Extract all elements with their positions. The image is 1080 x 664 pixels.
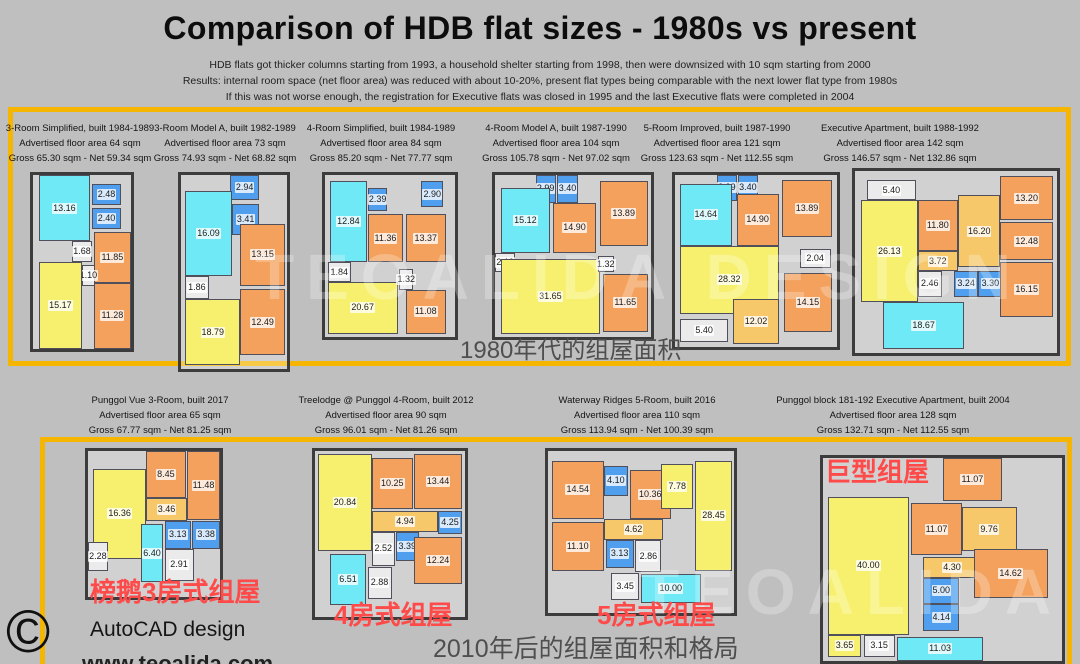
room-bath: 3.13 (606, 540, 634, 568)
room-area-sqm: 2.40 (97, 213, 117, 224)
room-bath: 4.14 (923, 604, 959, 630)
room-bed: 10.25 (372, 458, 413, 509)
plan-advertised-area: Advertised floor area 65 sqm (89, 408, 232, 423)
room-area-sqm: 13.20 (1014, 193, 1039, 204)
room-liv: 28.45 (695, 461, 732, 571)
plan-header: 3-Room Simplified, built 1984-1989Advert… (6, 121, 154, 166)
room-area-sqm: 28.32 (717, 274, 742, 285)
room-area-sqm: 1.84 (330, 267, 350, 278)
flat-type-label-cn: 巨型组屋 (825, 452, 929, 489)
room-area-sqm: 13.89 (611, 208, 636, 219)
room-kitchen: 12.84 (330, 181, 366, 262)
plan-header: Treelodge @ Punggol 4-Room, built 2012Ad… (298, 393, 473, 438)
room-bed: 16.15 (1000, 262, 1053, 317)
section-caption-cn: 1980年代的组屋面积 (460, 330, 681, 365)
room-dining: 3.72 (918, 251, 958, 271)
website-link[interactable]: www.teoalida.com (82, 651, 273, 664)
room-dining: 4.94 (372, 511, 438, 533)
room-kitchen: 15.12 (501, 188, 549, 253)
room-area-sqm: 2.52 (373, 543, 393, 554)
room-bath: 2.94 (230, 175, 260, 200)
plan-gross-net: Gross 105.78 sqm - Net 97.02 sqm (482, 151, 630, 166)
infographic-page: Comparison of HDB flat sizes - 1980s vs … (0, 0, 1080, 664)
room-kitchen: 13.16 (39, 175, 90, 241)
page-title: Comparison of HDB flat sizes - 1980s vs … (0, 10, 1080, 47)
room-store: 2.28 (88, 542, 108, 571)
room-area-sqm: 13.44 (426, 476, 451, 487)
room-dining: 16.20 (958, 195, 1000, 268)
room-area-sqm: 10.25 (380, 478, 405, 489)
room-area-sqm: 26.13 (877, 246, 902, 257)
room-store: 2.86 (635, 540, 661, 572)
room-store: 2.46 (918, 271, 942, 296)
room-bath: 3.38 (192, 521, 220, 549)
room-bath: 2.48 (92, 184, 121, 205)
room-dining: 9.76 (962, 507, 1017, 552)
room-area-sqm: 3.46 (157, 504, 177, 515)
room-liv: 18.79 (185, 299, 240, 365)
plan-header: 5-Room Improved, built 1987-1990Advertis… (641, 121, 793, 166)
plan-name: 4-Room Model A, built 1987-1990 (482, 121, 630, 136)
room-area-sqm: 2.28 (88, 551, 108, 562)
room-area-sqm: 16.36 (107, 508, 132, 519)
room-liv: 20.84 (318, 454, 372, 550)
plan-advertised-area: Advertised floor area 121 sqm (641, 136, 793, 151)
room-bed: 11.65 (603, 274, 648, 332)
intro-line-2: Results: internal room space (net floor … (0, 75, 1080, 87)
room-bath: 3.24 (954, 271, 978, 296)
room-bed: 11.28 (94, 283, 131, 349)
room-bed: 11.07 (911, 503, 961, 556)
room-area-sqm: 28.45 (701, 510, 726, 521)
plan-gross-net: Gross 113.94 sqm - Net 100.39 sqm (559, 423, 716, 438)
room-area-sqm: 6.40 (142, 548, 162, 559)
room-area-sqm: 14.54 (565, 484, 590, 495)
room-kitchen: 18.67 (883, 302, 964, 349)
room-bed: 14.62 (974, 549, 1048, 598)
room-area-sqm: 2.04 (805, 253, 825, 264)
plan-header: 4-Room Simplified, built 1984-1989Advert… (307, 121, 455, 166)
room-area-sqm: 4.25 (440, 517, 460, 528)
room-bed: 11.08 (406, 290, 446, 334)
room-dining: 3.46 (146, 498, 187, 521)
room-liv: 40.00 (828, 497, 909, 635)
room-area-sqm: 14.62 (998, 568, 1023, 579)
room-bath: 3.40 (557, 175, 577, 203)
room-area-sqm: 16.15 (1014, 284, 1039, 295)
room-area-sqm: 11.08 (414, 306, 438, 317)
room-store: 2.52 (372, 532, 395, 565)
intro-line-1: HDB flats got thicker columns starting f… (0, 59, 1080, 71)
room-store: 1.86 (185, 276, 208, 299)
room-area-sqm: 4.14 (932, 612, 952, 623)
room-area-sqm: 11.10 (566, 541, 590, 552)
room-bed: 13.89 (782, 180, 832, 237)
room-bath: 4.25 (438, 511, 462, 534)
plan-header: Executive Apartment, built 1988-1992Adve… (821, 121, 979, 166)
flat-type-label-cn: 5房式组屋 (597, 595, 715, 632)
room-area-sqm: 14.90 (562, 222, 587, 233)
room-area-sqm: 2.46 (920, 278, 940, 289)
room-area-sqm: 3.24 (956, 278, 976, 289)
room-area-sqm: 2.90 (422, 189, 442, 200)
room-dining: 4.30 (923, 557, 980, 577)
room-store: 3.15 (864, 635, 895, 657)
room-area-sqm: 12.24 (426, 555, 451, 566)
room-area-sqm: 3.15 (869, 640, 889, 651)
room-area-sqm: 5.00 (932, 585, 952, 596)
plan-gross-net: Gross 85.20 sqm - Net 77.77 sqm (307, 151, 455, 166)
room-area-sqm: 5.40 (882, 185, 902, 196)
room-store: 2.88 (368, 567, 392, 599)
room-bed: 11.80 (918, 200, 958, 251)
plan-advertised-area: Advertised floor area 142 sqm (821, 136, 979, 151)
room-area-sqm: 13.89 (795, 203, 820, 214)
room-store: 5.40 (867, 180, 915, 200)
room-area-sqm: 1.86 (187, 282, 207, 293)
room-area-sqm: 20.84 (333, 497, 358, 508)
room-area-sqm: 4.30 (942, 562, 962, 573)
room-kitchen: 11.03 (897, 637, 983, 661)
room-area-sqm: 3.30 (981, 278, 1001, 289)
plan-header: Punggol Vue 3-Room, built 2017Advertised… (89, 393, 232, 438)
room-area-sqm: 1.68 (72, 246, 92, 257)
plan-header: Punggol block 181-192 Executive Apartmen… (776, 393, 1009, 438)
room-bed: 14.90 (553, 203, 597, 253)
room-bed: 13.89 (600, 181, 648, 246)
room-area-sqm: 3.72 (928, 256, 948, 267)
room-liv: 7.78 (661, 464, 693, 509)
room-area-sqm: 11.28 (100, 310, 124, 321)
plan-name: Treelodge @ Punggol 4-Room, built 2012 (298, 393, 473, 408)
room-store: 2.04 (800, 249, 831, 268)
room-area-sqm: 2.86 (639, 551, 659, 562)
plan-advertised-area: Advertised floor area 110 sqm (559, 408, 716, 423)
floor-plan: 2.993.4015.1214.9013.892.1031.651.3211.6… (492, 172, 654, 340)
room-area-sqm: 10.36 (638, 489, 663, 500)
room-bed: 14.54 (552, 461, 604, 519)
plan-name: 5-Room Improved, built 1987-1990 (641, 121, 793, 136)
room-area-sqm: 40.00 (856, 560, 881, 571)
room-bed: 13.44 (414, 454, 462, 509)
room-bath: 4.10 (604, 466, 628, 497)
plan-advertised-area: Advertised floor area 73 sqm (154, 136, 297, 151)
room-area-sqm: 2.39 (368, 194, 388, 205)
room-area-sqm: 3.13 (168, 529, 188, 540)
plan-name: 3-Room Model A, built 1982-1989 (154, 121, 297, 136)
plan-gross-net: Gross 65.30 sqm - Net 59.34 sqm (6, 151, 154, 166)
copyright-icon: © (6, 602, 50, 662)
room-bed: 13.37 (406, 214, 446, 263)
room-area-sqm: 13.16 (52, 203, 77, 214)
intro-line-3: If this was not worse enough, the regist… (0, 91, 1080, 103)
room-area-sqm: 11.36 (374, 233, 398, 244)
room-area-sqm: 14.90 (745, 214, 770, 225)
room-bed: 12.49 (240, 289, 285, 355)
room-area-sqm: 12.48 (1014, 236, 1039, 247)
plan-name: Waterway Ridges 5-Room, built 2016 (559, 393, 716, 408)
room-dining: 4.62 (604, 519, 664, 540)
room-liv: 15.17 (39, 262, 82, 349)
room-liv: 20.67 (328, 282, 398, 334)
plan-gross-net: Gross 146.57 sqm - Net 132.86 sqm (821, 151, 979, 166)
room-area-sqm: 16.20 (967, 226, 992, 237)
room-bed: 8.45 (146, 451, 186, 498)
room-area-sqm: 1.32 (396, 274, 416, 285)
plan-gross-net: Gross 123.63 sqm - Net 112.55 sqm (641, 151, 793, 166)
room-bed: 14.15 (784, 273, 833, 331)
room-area-sqm: 11.07 (960, 474, 984, 485)
room-bed: 14.90 (737, 194, 779, 246)
room-area-sqm: 6.51 (338, 574, 358, 585)
room-bed: 11.07 (943, 458, 1003, 501)
room-area-sqm: 18.67 (911, 320, 936, 331)
room-area-sqm: 16.09 (196, 228, 221, 239)
room-store: 5.40 (680, 319, 729, 341)
room-bath: 3.13 (165, 521, 191, 549)
room-bed: 11.10 (552, 522, 604, 571)
room-store: 1.68 (72, 241, 92, 262)
room-area-sqm: 15.17 (48, 300, 73, 311)
room-area-sqm: 3.40 (738, 182, 758, 193)
room-bed: 12.48 (1000, 222, 1053, 260)
room-area-sqm: 7.78 (667, 481, 687, 492)
plan-gross-net: Gross 67.77 sqm - Net 81.25 sqm (89, 423, 232, 438)
room-area-sqm: 11.80 (926, 220, 950, 231)
room-bath: 5.00 (923, 578, 959, 604)
room-area-sqm: 5.40 (694, 325, 714, 336)
room-area-sqm: 1.32 (596, 259, 616, 270)
room-area-sqm: 11.03 (928, 643, 952, 654)
floor-plan: 5.4026.1311.8016.2013.2012.483.722.463.2… (852, 168, 1060, 356)
floor-plan: 2.9416.093.4113.151.8618.7912.49 (178, 172, 290, 372)
room-area-sqm: 3.45 (615, 581, 635, 592)
room-liv: 3.65 (828, 635, 861, 657)
room-area-sqm: 14.15 (796, 297, 821, 308)
flat-type-label-cn: 4房式组屋 (334, 595, 452, 632)
room-area-sqm: 2.88 (370, 577, 390, 588)
room-area-sqm: 11.48 (192, 480, 216, 491)
room-area-sqm: 3.38 (196, 529, 216, 540)
room-bath: 2.40 (92, 208, 121, 229)
room-bed: 11.85 (94, 232, 131, 282)
section-caption-cn: 2010年后的组屋面积和格局 (433, 629, 739, 664)
room-area-sqm: 3.65 (835, 640, 855, 651)
room-bed: 11.36 (368, 214, 403, 263)
room-bed: 13.20 (1000, 176, 1053, 220)
room-bed: 11.48 (187, 451, 220, 520)
room-area-sqm: 14.64 (694, 209, 719, 220)
plan-name: 4-Room Simplified, built 1984-1989 (307, 121, 455, 136)
room-area-sqm: 4.94 (395, 516, 415, 527)
floor-plan: 12.842.392.9011.3613.371.8420.671.3211.0… (322, 172, 458, 340)
plan-header: 3-Room Model A, built 1982-1989Advertise… (154, 121, 297, 166)
plan-header: 4-Room Model A, built 1987-1990Advertise… (482, 121, 630, 166)
plan-header: Waterway Ridges 5-Room, built 2016Advert… (559, 393, 716, 438)
room-area-sqm: 12.02 (744, 316, 769, 327)
room-area-sqm: 13.37 (413, 233, 438, 244)
room-area-sqm: 13.15 (250, 249, 275, 260)
plan-advertised-area: Advertised floor area 128 sqm (776, 408, 1009, 423)
plan-advertised-area: Advertised floor area 90 sqm (298, 408, 473, 423)
plan-advertised-area: Advertised floor area 64 sqm (6, 136, 154, 151)
plan-gross-net: Gross 96.01 sqm - Net 81.26 sqm (298, 423, 473, 438)
room-area-sqm: 8.45 (156, 469, 176, 480)
plan-name: Punggol block 181-192 Executive Apartmen… (776, 393, 1009, 408)
room-area-sqm: 12.84 (336, 216, 361, 227)
room-liv: 31.65 (501, 259, 599, 334)
room-liv: 26.13 (861, 200, 918, 302)
credit-text: AutoCAD design (90, 618, 245, 642)
plan-advertised-area: Advertised floor area 104 sqm (482, 136, 630, 151)
room-area-sqm: 3.13 (610, 548, 630, 559)
plan-advertised-area: Advertised floor area 84 sqm (307, 136, 455, 151)
room-area-sqm: 11.65 (613, 297, 637, 308)
room-bath: 2.90 (421, 181, 443, 207)
room-area-sqm: 2.48 (97, 189, 117, 200)
room-area-sqm: 2.91 (169, 559, 189, 570)
room-area-sqm: 9.76 (979, 524, 999, 535)
room-store: 1.32 (598, 256, 614, 272)
room-area-sqm: 11.85 (100, 252, 124, 263)
floor-plan: 13.162.482.401.6811.851.1015.1711.28 (30, 172, 134, 352)
room-kitchen: 14.64 (680, 184, 732, 246)
room-area-sqm: 20.67 (350, 302, 375, 313)
plan-name: Executive Apartment, built 1988-1992 (821, 121, 979, 136)
room-area-sqm: 18.79 (201, 327, 226, 338)
room-dining: 12.02 (733, 299, 778, 344)
room-area-sqm: 2.94 (235, 182, 255, 193)
room-area-sqm: 3.40 (558, 183, 578, 194)
room-kitchen: 16.09 (185, 191, 232, 276)
floor-plan: 2.993.4014.6414.9013.8928.322.0412.0214.… (672, 172, 840, 350)
room-bath: 3.30 (978, 271, 1002, 296)
room-area-sqm: 4.10 (606, 475, 626, 486)
floor-plan: 14.544.1010.367.7828.454.6211.103.132.86… (545, 448, 737, 616)
room-bed: 12.24 (414, 537, 462, 583)
plan-gross-net: Gross 132.71 sqm - Net 112.55 sqm (776, 423, 1009, 438)
plan-gross-net: Gross 74.93 sqm - Net 68.82 sqm (154, 151, 297, 166)
plan-name: 3-Room Simplified, built 1984-1989 (6, 121, 154, 136)
room-area-sqm: 4.62 (624, 524, 644, 535)
room-area-sqm: 15.12 (513, 215, 538, 226)
plan-name: Punggol Vue 3-Room, built 2017 (89, 393, 232, 408)
room-bed: 13.15 (240, 224, 285, 286)
flat-type-label-cn: 榜鹅3房式组屋 (90, 572, 260, 609)
room-store: 1.84 (328, 262, 351, 281)
room-store: 1.32 (399, 269, 413, 290)
room-area-sqm: 31.65 (538, 291, 563, 302)
room-area-sqm: 11.07 (925, 524, 949, 535)
room-bath: 2.39 (368, 188, 388, 211)
room-area-sqm: 12.49 (250, 317, 275, 328)
room-area-sqm: 10.00 (658, 583, 683, 594)
